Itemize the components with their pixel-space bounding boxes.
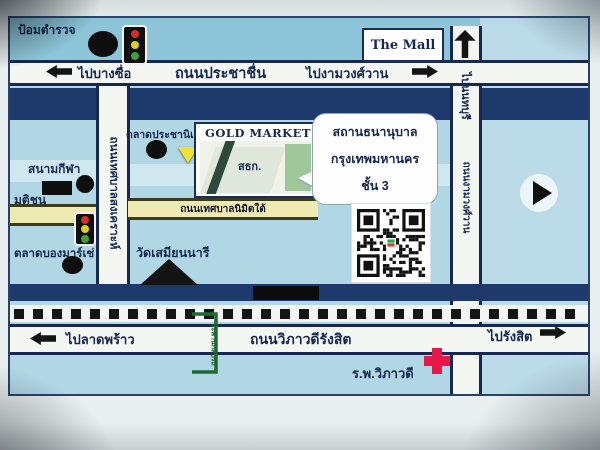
police-box-label: ป้อมตำรวจ xyxy=(18,21,75,40)
direction-label: ไปลาดพร้าว xyxy=(66,329,135,350)
traffic-yellow xyxy=(131,41,139,49)
callout-bubble: สถานธนานุบาล กรุงเทพมหานคร ชั้น 3 xyxy=(312,113,438,205)
traffic-red xyxy=(131,30,139,38)
arrow-left-icon xyxy=(30,332,56,345)
road-label: ถนนเทศบาลนิมิตใต้ xyxy=(180,202,265,217)
road-label: ถนนงามวงศ์วาน xyxy=(459,161,474,233)
direction-marker-circle xyxy=(520,174,558,212)
arrow-up-icon xyxy=(454,30,476,58)
matichon-label: มติชน xyxy=(14,191,46,210)
police-box-marker xyxy=(88,31,118,57)
market-marker xyxy=(146,140,167,159)
temple-icon xyxy=(140,259,198,285)
railway-line xyxy=(10,305,588,322)
stadium-marker xyxy=(42,181,72,195)
direction-label: ไปรังสิต xyxy=(488,326,533,347)
road-label: ถนนประชาชื่น xyxy=(175,62,266,85)
traffic-green xyxy=(131,52,139,60)
qr-pattern xyxy=(357,209,425,277)
cross-vertical xyxy=(432,348,442,374)
hospital-label: ร.พ.วิภาวดี xyxy=(352,363,414,384)
road-label: ถนนวิภาวดีรังสิต xyxy=(250,329,352,351)
qr-code xyxy=(352,204,430,282)
to-nonthaburi-wrap: ไปนนทบุรี xyxy=(450,58,482,134)
road-thetsaban-songkhro-label-wrap: ถนนเทศบาลสงเคราะห์ xyxy=(96,108,130,278)
callout-line: ชั้น 3 xyxy=(361,176,388,196)
the-mall-label: The Mall xyxy=(371,38,436,53)
arrow-right-triangle-icon xyxy=(533,181,552,205)
traffic-light-icon xyxy=(122,25,147,65)
building-sign: สธก. xyxy=(238,157,261,175)
traffic-light-icon xyxy=(74,212,96,246)
road-label: ถนนเทศบาลสงเคราะห์ xyxy=(104,137,122,250)
traffic-red xyxy=(81,216,89,224)
direction-label: ไปนนทบุรี xyxy=(457,72,475,120)
the-mall-box: The Mall xyxy=(362,28,444,62)
stadium-dot-marker xyxy=(76,175,94,193)
traffic-yellow xyxy=(81,225,89,233)
direction-label: ไปงามวงศ์วาน xyxy=(306,63,388,84)
callout-line: กรุงเทพมหานคร xyxy=(331,149,419,169)
callout-line: สถานธนานุบาล xyxy=(332,122,417,142)
u-turn-label: สะพานกลับรถ xyxy=(208,323,219,365)
bon-marche-label: ตลาดบองมาร์เช่ xyxy=(14,245,94,263)
arrow-right-icon xyxy=(540,326,566,339)
traffic-green xyxy=(81,235,89,243)
gold-market-title: GOLD MARKET xyxy=(196,126,320,140)
railway-ties xyxy=(14,309,584,319)
stadium-label: สนามกีฬา xyxy=(28,160,80,179)
building-block xyxy=(253,286,319,300)
map-canvas: ถนนเทศบาลสงเคราะห์ ถนนเทศบาลนิมิตใต้ ไปน… xyxy=(8,16,590,396)
u-turn-label-wrap: สะพานกลับรถ xyxy=(206,314,220,374)
arrow-right-icon xyxy=(412,65,438,78)
road-ngamwongwan-label-wrap: ถนนงามวงศ์วาน xyxy=(450,138,482,256)
direction-label: ไปบางซื่อ xyxy=(78,63,131,84)
bon-marche-marker xyxy=(62,256,83,274)
road-thetsaban-nimit: ถนนเทศบาลนิมิตใต้ xyxy=(128,198,318,220)
arrow-left-icon xyxy=(46,65,72,78)
map-photo: ถนนเทศบาลสงเคราะห์ ถนนเทศบาลนิมิตใต้ ไปน… xyxy=(0,0,600,450)
hospital-cross-icon xyxy=(424,348,450,374)
